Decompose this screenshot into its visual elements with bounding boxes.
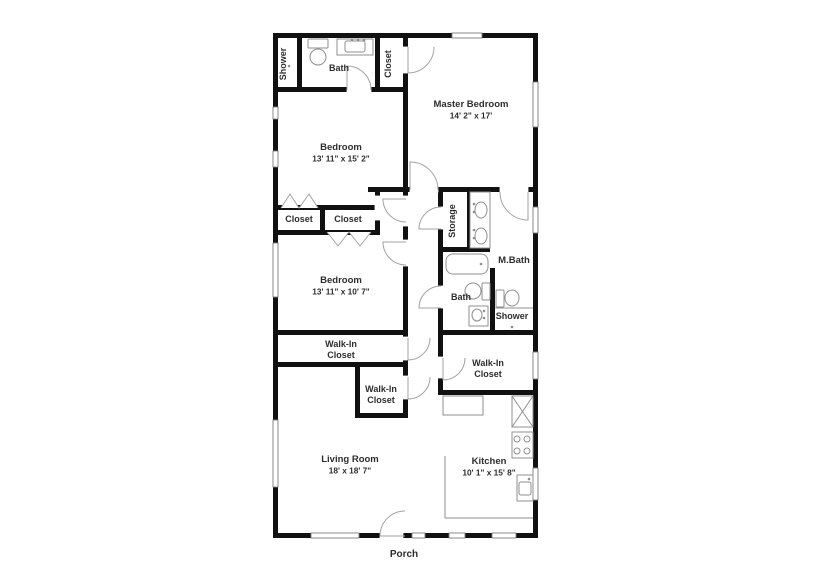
room-label-kitchen: Kitchen — [472, 456, 507, 467]
wall — [273, 87, 403, 92]
stove-burner-icon — [514, 436, 520, 442]
room-dims-master-bedroom: 14' 2" x 17' — [450, 111, 493, 121]
wall — [273, 33, 538, 38]
window — [273, 107, 278, 119]
fixture-rect — [519, 482, 531, 495]
stove-burner-icon — [524, 436, 530, 442]
doorway-gap — [410, 187, 439, 193]
window — [533, 82, 538, 127]
fixture-basin-icon — [475, 202, 487, 218]
room-label-closet-hall: Closet — [383, 50, 393, 78]
wall — [355, 413, 408, 418]
fixture-dot — [483, 310, 486, 313]
fixture-dot — [363, 39, 366, 42]
room-dims-bedroom-2: 13' 11" x 10' 7" — [312, 287, 370, 297]
doorway-gap — [347, 87, 372, 93]
fixture-dot — [480, 263, 483, 266]
room-dims-living-room: 18' x 18' 7" — [329, 466, 372, 476]
floor-plan: ShowerBathClosetMaster Bedroom14' 2" x 1… — [0, 0, 820, 560]
room-label-porch: Porch — [390, 549, 418, 560]
room-label-bedroom-2: Bedroom — [320, 275, 362, 286]
wall — [375, 38, 380, 92]
window — [273, 243, 278, 297]
fixture-rect — [482, 283, 490, 300]
wall — [355, 367, 360, 418]
window — [273, 151, 278, 167]
fixture-rect — [512, 432, 533, 458]
fixture-dot — [288, 65, 291, 68]
room-label-master-bedroom: Master Bedroom — [434, 99, 509, 110]
wall — [273, 330, 408, 335]
wall — [403, 38, 408, 418]
window — [412, 533, 425, 538]
room-label-walk-in-closet-3: Closet — [474, 369, 502, 379]
window — [533, 352, 538, 379]
room-label-shower-1: Shower — [278, 47, 288, 80]
wall — [438, 390, 538, 395]
doorway-gap — [500, 187, 529, 193]
window — [533, 207, 538, 233]
room-label-bedroom-1: Bedroom — [320, 142, 362, 153]
room-label-shower-2: Shower — [496, 311, 529, 321]
fixture-basin-icon — [505, 290, 519, 306]
room-label-walk-in-closet-2: Closet — [367, 395, 395, 405]
doorway-gap — [438, 286, 444, 309]
window — [449, 533, 465, 538]
room-label-walk-in-closet-3: Walk-In — [472, 358, 504, 368]
window — [452, 33, 482, 38]
window — [492, 533, 516, 538]
floor-plan-image: ShowerBathClosetMaster Bedroom14' 2" x 1… — [0, 0, 820, 560]
room-label-bath-2: Bath — [451, 292, 471, 302]
fixture-rect — [345, 41, 365, 52]
room-label-walk-in-closet-2: Walk-In — [365, 384, 397, 394]
fixture-basin-icon — [472, 309, 482, 321]
fixture-dot — [473, 229, 476, 232]
fixture-dot — [473, 211, 476, 214]
room-dims-kitchen: 10' 1" x 15' 8" — [462, 468, 515, 478]
fixture-dot — [483, 317, 486, 320]
fixture-dot — [357, 39, 360, 42]
doorway-gap — [403, 240, 409, 267]
doorway-gap — [375, 196, 381, 221]
room-label-living-room: Living Room — [321, 454, 379, 465]
fixture-rect — [496, 290, 504, 307]
stove-burner-icon — [524, 448, 530, 454]
room-label-closet-2: Closet — [334, 214, 362, 224]
room-dims-bedroom-1: 13' 11" x 15' 2" — [312, 154, 370, 164]
fixture-dot — [473, 237, 476, 240]
room-label-walk-in-closet-1: Walk-In — [325, 339, 357, 349]
room-label-walk-in-closet-1: Closet — [327, 350, 355, 360]
room-label-closet-1: Closet — [285, 214, 313, 224]
fixture-dot — [528, 478, 531, 481]
fixture-rect — [308, 39, 328, 48]
room-label-storage: Storage — [447, 204, 457, 238]
wall — [368, 187, 408, 192]
wall — [273, 362, 408, 367]
fixture-dot — [351, 39, 354, 42]
fixture-dot — [511, 326, 514, 329]
window — [533, 468, 538, 500]
window — [311, 533, 359, 538]
fixture-basin-icon — [475, 228, 487, 244]
window — [273, 420, 278, 487]
plan-background — [0, 0, 820, 560]
room-label-bath-1: Bath — [329, 63, 349, 73]
fixture-dot — [473, 203, 476, 206]
stove-burner-icon — [514, 448, 520, 454]
room-label-m-bath: M.Bath — [498, 255, 530, 266]
wall — [490, 268, 495, 335]
doorway-gap — [438, 207, 444, 230]
wall — [438, 330, 538, 335]
fixture-basin-icon — [310, 49, 326, 65]
fixture-rect — [443, 396, 483, 415]
wall — [320, 205, 325, 235]
wall — [297, 38, 302, 92]
